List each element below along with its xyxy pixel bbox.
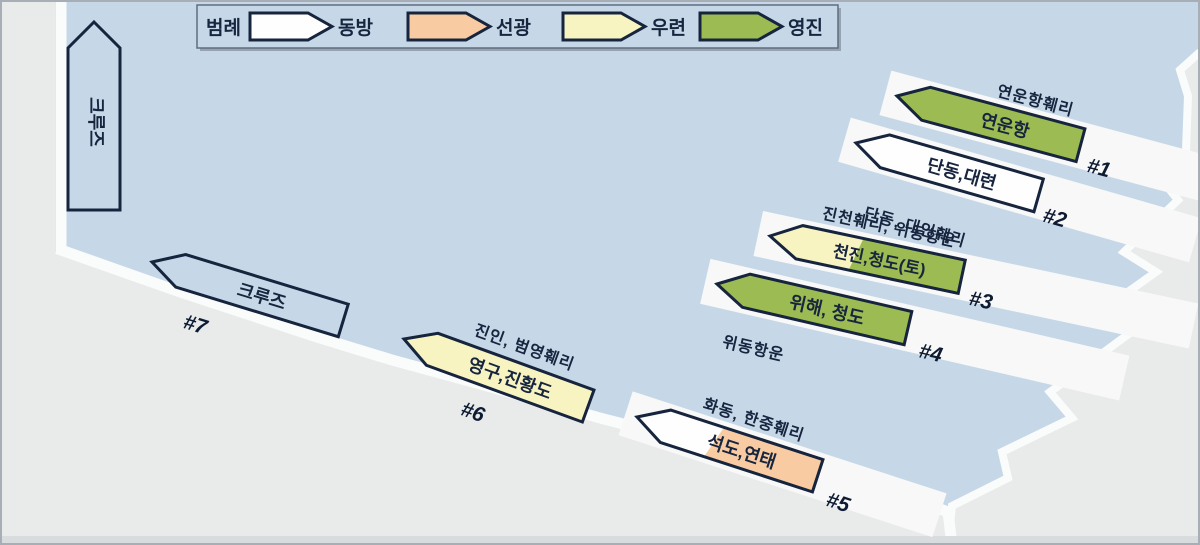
legend: 범례 동방 선광 우련 영진 bbox=[197, 5, 841, 51]
cruise-pier: 크루즈 bbox=[68, 22, 120, 210]
legend-item-label: 우련 bbox=[651, 17, 686, 39]
legend-item-sunkwang: 선광 bbox=[408, 13, 531, 40]
legend-item-label: 동방 bbox=[338, 17, 373, 39]
cruise-pier-label: 크루즈 bbox=[86, 97, 106, 147]
legend-item-wooryun: 우련 bbox=[563, 13, 686, 40]
port-berth-map: 범례 동방 선광 우련 영진 연운항 연운항훼리 #1 단동,대련 단동, bbox=[0, 0, 1200, 545]
legend-item-label: 영진 bbox=[788, 17, 823, 39]
legend-item-label: 선광 bbox=[496, 17, 531, 39]
legend-item-dongbang: 동방 bbox=[250, 13, 373, 40]
legend-item-youngjin: 영진 bbox=[700, 13, 823, 40]
legend-title: 범례 bbox=[206, 17, 241, 39]
